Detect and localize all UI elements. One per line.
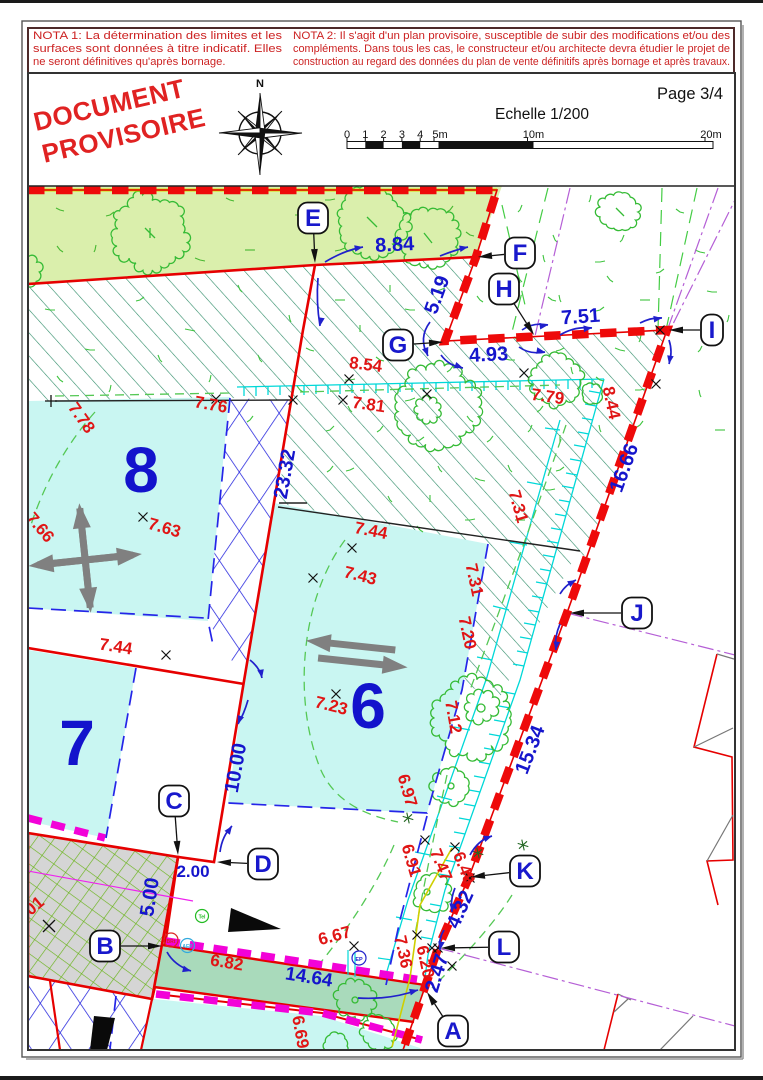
svg-text:H: H [495, 276, 512, 303]
svg-text:C: C [165, 788, 182, 815]
svg-text:D: D [254, 851, 271, 878]
svg-text:F: F [513, 240, 528, 267]
svg-text:7.51: 7.51 [560, 305, 600, 330]
svg-text:B: B [96, 933, 113, 960]
svg-text:Page 3/4: Page 3/4 [657, 85, 723, 103]
svg-text:EP: EP [355, 957, 363, 963]
svg-text:8.84: 8.84 [375, 233, 416, 257]
svg-text:10m: 10m [523, 129, 544, 141]
svg-text:construction au regard des don: construction au regard des données du pl… [293, 56, 730, 68]
svg-text:BRt: BRt [167, 939, 176, 945]
svg-text:6: 6 [350, 670, 386, 742]
svg-text:I: I [709, 317, 716, 344]
svg-text:surfaces sont données à titre: surfaces sont données à titre indicatif.… [33, 43, 282, 55]
svg-text:AEP: AEP [182, 944, 193, 950]
svg-text:20m: 20m [700, 129, 721, 141]
svg-text:ne seront définitives qu'aprè: ne seront définitives qu'après bornage. [33, 56, 225, 68]
svg-text:Echelle 1/200: Echelle 1/200 [495, 106, 589, 123]
svg-text:A: A [444, 1018, 461, 1045]
svg-text:7: 7 [59, 707, 95, 779]
svg-text:NOTA 2: Il s'agit d'un plan pr: NOTA 2: Il s'agit d'un plan provisoire, … [293, 30, 730, 42]
svg-text:4.93: 4.93 [469, 343, 509, 367]
svg-text:Tel: Tel [199, 915, 206, 921]
svg-text:K: K [516, 858, 534, 885]
svg-text:J: J [630, 600, 643, 627]
svg-text:N: N [256, 78, 264, 90]
svg-text:G: G [389, 332, 408, 359]
svg-text:8: 8 [123, 434, 159, 506]
svg-text:L: L [497, 934, 512, 961]
svg-text:compléments. Dans tous les cas: compléments. Dans tous les cas, le const… [293, 43, 730, 55]
svg-text:NOTA 1: La détermination des l: NOTA 1: La détermination des limites et … [33, 30, 282, 42]
svg-text:5m: 5m [432, 129, 447, 141]
svg-text:8.54: 8.54 [348, 353, 384, 376]
svg-text:E: E [305, 205, 321, 232]
svg-text:2.00: 2.00 [176, 862, 209, 881]
